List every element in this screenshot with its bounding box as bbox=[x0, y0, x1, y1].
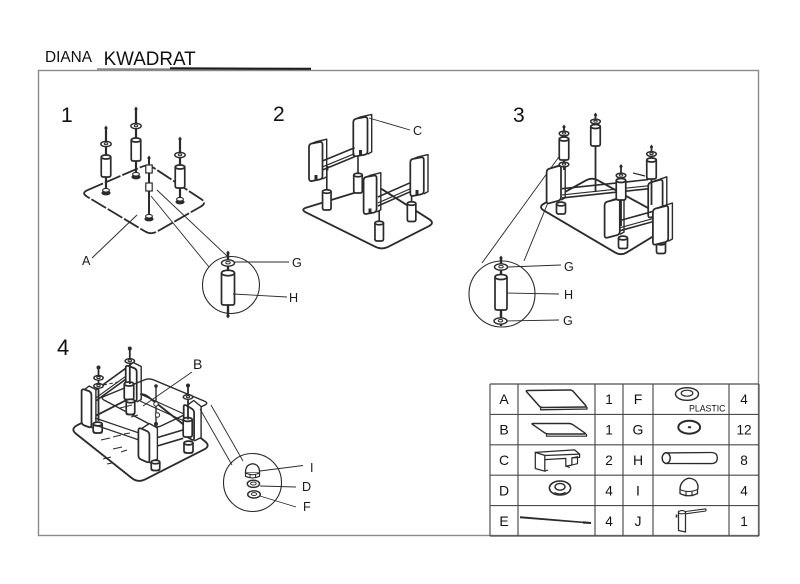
svg-text:D: D bbox=[302, 480, 311, 494]
svg-text:8: 8 bbox=[740, 453, 748, 468]
svg-text:4: 4 bbox=[740, 483, 748, 498]
svg-text:4: 4 bbox=[605, 483, 613, 498]
svg-text:4: 4 bbox=[740, 392, 748, 407]
svg-text:PLASTIC: PLASTIC bbox=[689, 404, 726, 414]
svg-text:12: 12 bbox=[736, 423, 751, 438]
svg-text:1: 1 bbox=[740, 514, 748, 529]
svg-text:F: F bbox=[634, 391, 643, 407]
svg-text:B: B bbox=[193, 356, 202, 372]
svg-text:H: H bbox=[289, 291, 298, 305]
svg-text:J: J bbox=[635, 513, 642, 529]
svg-text:3: 3 bbox=[513, 104, 525, 127]
svg-text:C: C bbox=[499, 452, 509, 468]
svg-text:G: G bbox=[564, 260, 574, 274]
svg-text:H: H bbox=[564, 288, 573, 302]
svg-text:F: F bbox=[303, 500, 311, 514]
svg-text:KWADRAT: KWADRAT bbox=[104, 48, 196, 70]
svg-text:I: I bbox=[310, 461, 314, 475]
svg-text:G: G bbox=[633, 422, 644, 438]
svg-text:H: H bbox=[633, 452, 643, 468]
svg-text:4: 4 bbox=[605, 514, 613, 529]
svg-text:E: E bbox=[499, 513, 508, 529]
svg-text:D: D bbox=[499, 482, 509, 498]
svg-text:A: A bbox=[82, 254, 91, 268]
svg-text:G: G bbox=[292, 256, 302, 270]
svg-text:1: 1 bbox=[605, 423, 613, 438]
svg-text:C: C bbox=[413, 124, 422, 138]
svg-text:DIANA: DIANA bbox=[45, 49, 93, 66]
svg-text:I: I bbox=[636, 482, 640, 498]
svg-text:2: 2 bbox=[273, 103, 285, 126]
svg-text:A: A bbox=[499, 391, 509, 407]
svg-text:1: 1 bbox=[61, 104, 73, 127]
svg-text:B: B bbox=[499, 422, 508, 438]
svg-text:4: 4 bbox=[57, 335, 69, 360]
svg-text:2: 2 bbox=[605, 453, 613, 468]
svg-text:1: 1 bbox=[605, 392, 613, 407]
svg-text:G: G bbox=[563, 314, 573, 328]
